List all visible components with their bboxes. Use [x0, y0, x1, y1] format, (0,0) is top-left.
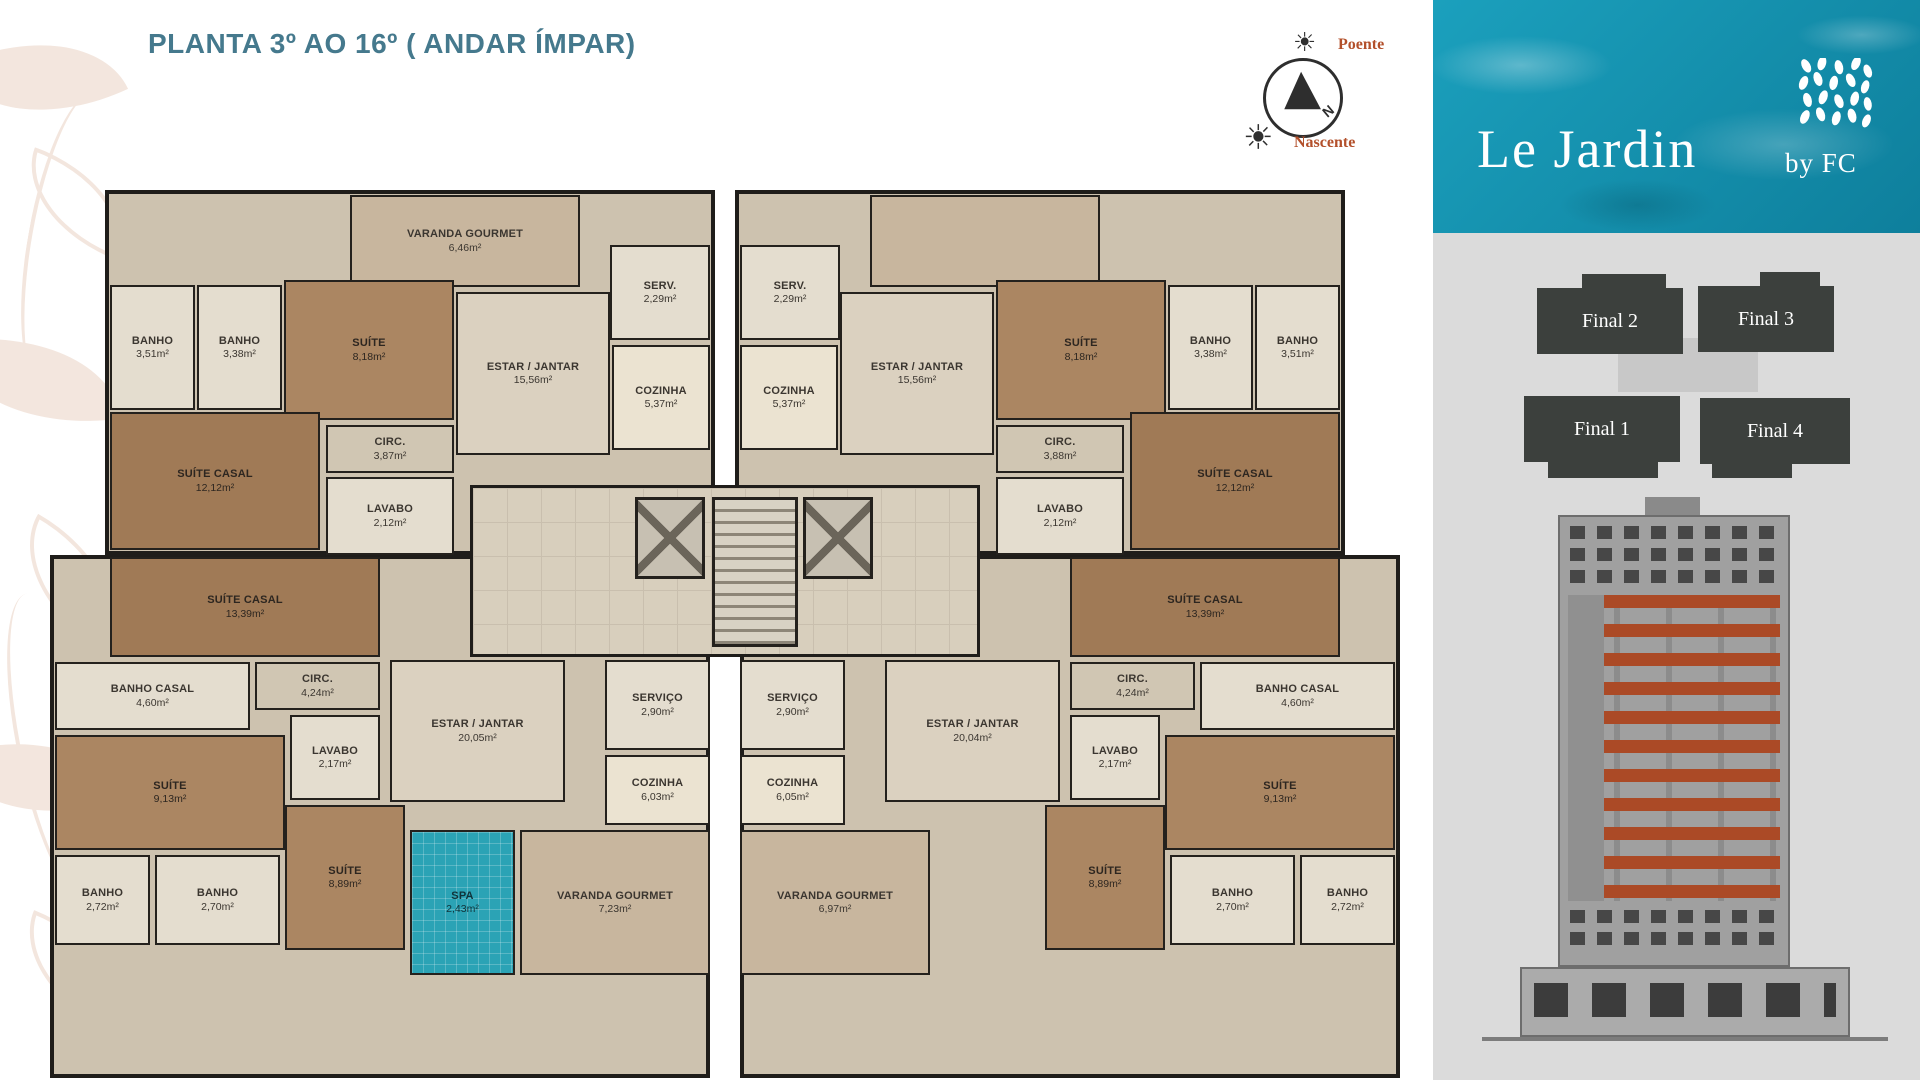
key-plan-final-1: Final 1	[1524, 396, 1680, 462]
room-area: 4,24m²	[1116, 687, 1149, 699]
room-label: SUÍTE CASAL	[207, 594, 283, 607]
room-area: 3,51m²	[1281, 348, 1314, 360]
room-label: CIRC.	[302, 673, 333, 686]
room-lavabo: LAVABO 2,12m²	[326, 477, 454, 555]
floor-plan: VARANDA GOURMET 6,46m² SERV. 2,29m² COZI…	[50, 185, 1400, 1078]
room-label: BANHO	[1277, 335, 1318, 348]
room-cozinha: COZINHA 6,05m²	[740, 755, 845, 825]
room-label: SUÍTE	[352, 337, 385, 350]
room-area: 4,60m²	[136, 697, 169, 709]
elevation-core-column	[1568, 595, 1604, 901]
room-area: 2,17m²	[319, 758, 352, 770]
room-banho: BANHO 2,70m²	[1170, 855, 1295, 945]
room-varanda-gourmet: VARANDA GOURMET 6,97m²	[740, 830, 930, 975]
room-area: 2,72m²	[1331, 901, 1364, 913]
room-area: 20,05m²	[458, 732, 497, 744]
room-label: VARANDA GOURMET	[557, 890, 673, 903]
room-estar-jantar: ESTAR / JANTAR 15,56m²	[840, 292, 994, 455]
room-area: 2,29m²	[644, 293, 677, 305]
room-cozinha: COZINHA 6,03m²	[605, 755, 710, 825]
room-area: 8,18m²	[353, 351, 386, 363]
room-suite: SUÍTE 9,13m²	[55, 735, 285, 850]
room-banho-casal: BANHO CASAL 4,60m²	[1200, 662, 1395, 730]
room-suite-casal: SUÍTE CASAL 12,12m²	[1130, 412, 1340, 550]
room-area: 12,12m²	[1216, 482, 1255, 494]
sun-icon: ☀	[1293, 28, 1316, 58]
room-label: COZINHA	[767, 777, 819, 790]
room-label: BANHO	[1190, 335, 1231, 348]
room-banho-casal: BANHO CASAL 4,60m²	[55, 662, 250, 730]
room-label: BANHO	[197, 887, 238, 900]
elevation-window-row	[1570, 932, 1778, 945]
room-serv: SERV. 2,29m²	[610, 245, 710, 340]
page-title: PLANTA 3º AO 16º ( ANDAR ÍMPAR)	[148, 28, 636, 60]
elevation-highlighted-floors	[1568, 595, 1780, 901]
key-plan-notch	[1712, 464, 1792, 478]
room-area: 6,46m²	[449, 242, 482, 254]
room-label: BANHO	[1212, 887, 1253, 900]
room-area: 9,13m²	[154, 793, 187, 805]
key-plan-final-2: Final 2	[1537, 288, 1683, 354]
room-circ: CIRC. 3,87m²	[326, 425, 454, 473]
room-label: SUÍTE CASAL	[1167, 594, 1243, 607]
room-area: 4,24m²	[301, 687, 334, 699]
key-plan-notch	[1548, 462, 1658, 478]
elevation-base-openings	[1534, 983, 1836, 1017]
room-label: SERVIÇO	[632, 692, 683, 705]
room-area: 2,70m²	[1216, 901, 1249, 913]
room-cozinha: COZINHA 5,37m²	[740, 345, 838, 450]
room-label: BANHO CASAL	[111, 683, 194, 696]
room-label: LAVABO	[367, 503, 413, 516]
key-plan-label: Final 2	[1582, 310, 1638, 333]
room-label: COZINHA	[763, 385, 815, 398]
room-label: SUÍTE CASAL	[177, 468, 253, 481]
room-area: 7,23m²	[599, 903, 632, 915]
room-area: 2,17m²	[1099, 758, 1132, 770]
room-label: LAVABO	[312, 745, 358, 758]
elevator-1	[635, 497, 705, 579]
room-label: SUÍTE	[328, 865, 361, 878]
room-banho: BANHO 3,38m²	[1168, 285, 1253, 410]
room-servico: SERVIÇO 2,90m²	[605, 660, 710, 750]
room-label: SERVIÇO	[767, 692, 818, 705]
room-label: SUÍTE	[1088, 865, 1121, 878]
room-lavabo: LAVABO 2,12m²	[996, 477, 1124, 555]
room-area: 2,12m²	[374, 517, 407, 529]
compass-poente-label: Poente	[1338, 36, 1384, 54]
room-banho: BANHO 2,70m²	[155, 855, 280, 945]
room-circ: CIRC. 4,24m²	[255, 662, 380, 710]
terrace	[870, 195, 1100, 287]
room-serv: SERV. 2,29m²	[740, 245, 840, 340]
room-area: 6,05m²	[776, 791, 809, 803]
room-circ: CIRC. 4,24m²	[1070, 662, 1195, 710]
room-area: 4,60m²	[1281, 697, 1314, 709]
room-label: CIRC.	[1045, 436, 1076, 449]
room-label: ESTAR / JANTAR	[431, 718, 523, 731]
room-label: BANHO CASAL	[1256, 683, 1339, 696]
room-label: SUÍTE	[1064, 337, 1097, 350]
room-label: CIRC.	[1117, 673, 1148, 686]
brand-name: Le Jardin	[1477, 118, 1697, 180]
room-area: 2,70m²	[201, 901, 234, 913]
room-suite: SUÍTE 9,13m²	[1165, 735, 1395, 850]
room-estar-jantar: ESTAR / JANTAR 15,56m²	[456, 292, 610, 455]
room-label: SUÍTE	[153, 780, 186, 793]
room-suite: SUÍTE 8,89m²	[1045, 805, 1165, 950]
stairwell	[712, 497, 798, 647]
room-area: 6,97m²	[819, 903, 852, 915]
elevation-window-row	[1570, 910, 1778, 923]
room-area: 3,87m²	[374, 450, 407, 462]
room-label: LAVABO	[1092, 745, 1138, 758]
room-banho: BANHO 2,72m²	[1300, 855, 1395, 945]
room-area: 6,03m²	[641, 791, 674, 803]
room-suite: SUÍTE 8,18m²	[996, 280, 1166, 420]
room-area: 5,37m²	[773, 398, 806, 410]
room-label: ESTAR / JANTAR	[871, 361, 963, 374]
room-area: 13,39m²	[226, 608, 265, 620]
compass-nascente-label: Nascente	[1294, 134, 1355, 152]
room-area: 3,38m²	[223, 348, 256, 360]
room-lavabo: LAVABO 2,17m²	[290, 715, 380, 800]
room-lavabo: LAVABO 2,17m²	[1070, 715, 1160, 800]
elevation-base	[1520, 967, 1850, 1037]
room-servico: SERVIÇO 2,90m²	[740, 660, 845, 750]
room-label: CIRC.	[375, 436, 406, 449]
room-circ: CIRC. 3,88m²	[996, 425, 1124, 473]
room-area: 2,29m²	[774, 293, 807, 305]
room-label: COZINHA	[635, 385, 687, 398]
room-suite-casal: SUÍTE CASAL 12,12m²	[110, 412, 320, 550]
elevation-window-row	[1570, 526, 1778, 539]
room-banho: BANHO 3,51m²	[1255, 285, 1340, 410]
room-label: SERV.	[644, 280, 677, 293]
room-label: SPA	[451, 890, 473, 903]
room-label: SERV.	[774, 280, 807, 293]
room-banho: BANHO 3,38m²	[197, 285, 282, 410]
room-area: 20,04m²	[953, 732, 992, 744]
room-area: 13,39m²	[1186, 608, 1225, 620]
room-area: 15,56m²	[898, 374, 937, 386]
key-plan-final-4: Final 4	[1700, 398, 1850, 464]
room-varanda-gourmet: VARANDA GOURMET 7,23m²	[520, 830, 710, 975]
room-label: BANHO	[219, 335, 260, 348]
room-banho: BANHO 3,51m²	[110, 285, 195, 410]
room-cozinha: COZINHA 5,37m²	[612, 345, 710, 450]
room-area: 9,13m²	[1264, 793, 1297, 805]
elevation-ground-line	[1482, 1037, 1888, 1041]
room-area: 8,89m²	[329, 878, 362, 890]
room-area: 2,90m²	[776, 706, 809, 718]
room-label: SUÍTE	[1263, 780, 1296, 793]
elevator-2	[803, 497, 873, 579]
room-area: 2,90m²	[641, 706, 674, 718]
room-label: SUÍTE CASAL	[1197, 468, 1273, 481]
room-suite: SUÍTE 8,89m²	[285, 805, 405, 950]
brand-suffix: by FC	[1785, 148, 1857, 179]
brand-header: Le Jardin by FC	[1433, 0, 1920, 233]
room-label: ESTAR / JANTAR	[926, 718, 1018, 731]
room-area: 2,12m²	[1044, 517, 1077, 529]
room-area: 15,56m²	[514, 374, 553, 386]
room-area: 5,37m²	[645, 398, 678, 410]
room-suite: SUÍTE 8,18m²	[284, 280, 454, 420]
room-estar-jantar: ESTAR / JANTAR 20,04m²	[885, 660, 1060, 802]
elevation-roof	[1645, 497, 1700, 517]
room-area: 2,72m²	[86, 901, 119, 913]
sun-icon: ☀	[1243, 118, 1273, 158]
key-plan-label: Final 1	[1574, 418, 1630, 441]
room-area: 3,51m²	[136, 348, 169, 360]
room-label: VARANDA GOURMET	[407, 228, 523, 241]
room-varanda-gourmet: VARANDA GOURMET 6,46m²	[350, 195, 580, 287]
room-area: 3,38m²	[1194, 348, 1227, 360]
room-label: COZINHA	[632, 777, 684, 790]
elevation-window-row	[1570, 548, 1778, 561]
room-label: ESTAR / JANTAR	[487, 361, 579, 374]
room-area: 8,89m²	[1089, 878, 1122, 890]
elevation-window-row	[1570, 570, 1778, 583]
elevation-tower	[1558, 515, 1790, 967]
room-area: 2,43m²	[446, 903, 479, 915]
room-area: 12,12m²	[196, 482, 235, 494]
room-label: BANHO	[1327, 887, 1368, 900]
key-plan-label: Final 3	[1738, 308, 1794, 331]
key-plan-final-3: Final 3	[1698, 286, 1834, 352]
room-area: 8,18m²	[1065, 351, 1098, 363]
room-suite-casal: SUÍTE CASAL 13,39m²	[110, 557, 380, 657]
room-label: BANHO	[132, 335, 173, 348]
room-area: 3,88m²	[1044, 450, 1077, 462]
room-spa: SPA 2,43m²	[410, 830, 515, 975]
room-estar-jantar: ESTAR / JANTAR 20,05m²	[390, 660, 565, 802]
leaf-ornament-icon	[1795, 58, 1875, 139]
room-label: LAVABO	[1037, 503, 1083, 516]
room-suite-casal: SUÍTE CASAL 13,39m²	[1070, 557, 1340, 657]
room-banho: BANHO 2,72m²	[55, 855, 150, 945]
room-label: BANHO	[82, 887, 123, 900]
room-label: VARANDA GOURMET	[777, 890, 893, 903]
key-plan-label: Final 4	[1747, 420, 1803, 443]
